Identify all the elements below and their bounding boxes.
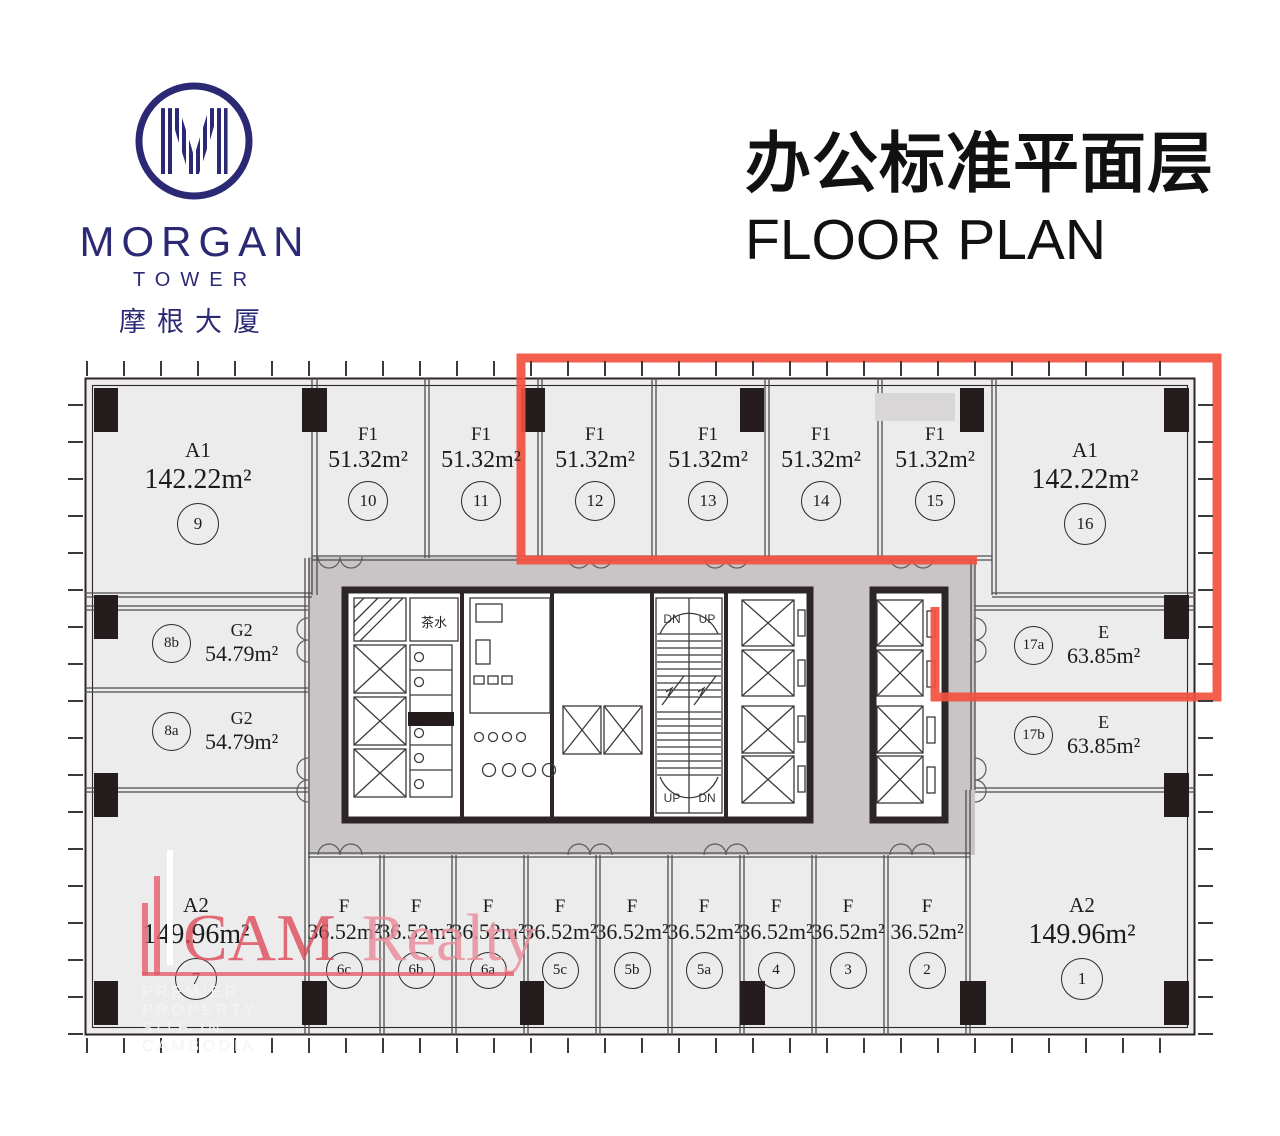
unit-number-badge: 8b xyxy=(152,624,191,663)
unit-label-12: F1 51.32m² 12 xyxy=(535,424,655,521)
dimension-ticks-left xyxy=(68,380,83,1035)
unit-number-badge: 16 xyxy=(1064,503,1106,545)
unit-number-badge: 5b xyxy=(614,952,651,989)
unit-number-badge: 10 xyxy=(348,481,388,521)
unit-number-badge: 17b xyxy=(1014,716,1053,755)
unit-number-badge: 4 xyxy=(758,952,795,989)
morgan-logo-monogram: M xyxy=(139,86,249,196)
unit-number-badge: 6c xyxy=(326,952,363,989)
dimension-ticks-top xyxy=(86,361,1196,376)
unit-label-17a: 17a E 63.85m² xyxy=(1014,622,1140,669)
unit-label-7: A2 149.96m² 7 xyxy=(116,893,276,1000)
unit-number-badge: 5a xyxy=(686,952,723,989)
unit-number-badge: 5c xyxy=(542,952,579,989)
unit-label-8a: 8a G2 54.79m² xyxy=(152,708,278,755)
unit-number-badge: 7 xyxy=(175,958,217,1000)
monogram-m: M xyxy=(154,88,234,195)
stair-dn-top-label: DN xyxy=(663,612,680,626)
unit-number-badge: 6b xyxy=(398,952,435,989)
dimension-ticks-right xyxy=(1198,380,1213,1035)
redacted-label-patch xyxy=(875,393,955,421)
brand-chinese-name: 摩根大厦 xyxy=(55,300,335,339)
unit-label-13: F1 51.32m² 13 xyxy=(648,424,768,521)
unit-label-17b: 17b E 63.85m² xyxy=(1014,712,1140,759)
unit-number-badge: 9 xyxy=(177,503,219,545)
page-title: 办公标准平面层 FLOOR PLAN xyxy=(745,122,1214,273)
unit-label-15: F1 51.32m² 15 xyxy=(875,424,995,521)
unit-number-badge: 1 xyxy=(1061,958,1103,1000)
unit-number-badge: 8a xyxy=(152,712,191,751)
stair-up-bottom-label: UP xyxy=(664,791,681,805)
floor-plan-page: 茶水 DN UP UP DN M MORGAN TOWER 摩根大厦 办公标准平… xyxy=(0,0,1280,1136)
unit-number-badge: 3 xyxy=(830,952,867,989)
stair-dn-bottom-label: DN xyxy=(698,791,715,805)
unit-number-badge: 17a xyxy=(1014,626,1053,665)
unit-label-10: F1 51.32m² 10 xyxy=(308,424,428,521)
unit-label-16: A1 142.22m² 16 xyxy=(1005,438,1165,545)
unit-number-badge: 2 xyxy=(909,952,946,989)
unit-label-11: F1 51.32m² 11 xyxy=(421,424,541,521)
unit-number-badge: 14 xyxy=(801,481,841,521)
unit-number-badge: 15 xyxy=(915,481,955,521)
brand-subtitle: TOWER xyxy=(55,269,335,292)
unit-number-badge: 11 xyxy=(461,481,501,521)
unit-number-badge: 6a xyxy=(470,952,507,989)
title-english: FLOOR PLAN xyxy=(745,207,1214,273)
unit-label-14: F1 51.32m² 14 xyxy=(761,424,881,521)
unit-label-9: A1 142.22m² 9 xyxy=(118,438,278,545)
unit-number-badge: 12 xyxy=(575,481,615,521)
unit-label-8b: 8b G2 54.79m² xyxy=(152,620,278,667)
tea-room-label: 茶水 xyxy=(421,615,447,630)
unit-label-2: F 36.52m² 2 xyxy=(872,896,982,989)
unit-number-badge: 13 xyxy=(688,481,728,521)
unit-label-1: A2 149.96m² 1 xyxy=(1002,893,1162,1000)
stair-up-top-label: UP xyxy=(699,612,716,626)
morgan-tower-logo: MORGAN TOWER 摩根大厦 xyxy=(55,208,335,339)
dimension-ticks-bottom xyxy=(86,1038,1196,1053)
brand-name: MORGAN xyxy=(55,218,335,266)
title-chinese: 办公标准平面层 xyxy=(745,122,1214,205)
